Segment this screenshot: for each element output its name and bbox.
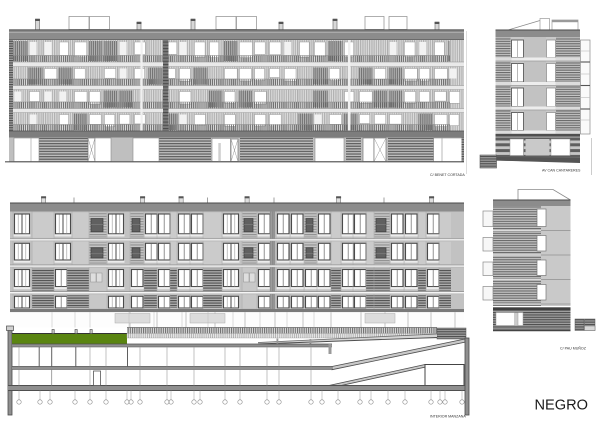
svg-text:AV CAN CANTARERES: AV CAN CANTARERES (542, 169, 581, 173)
svg-text:INTERIOR MANZANA: INTERIOR MANZANA (430, 415, 466, 419)
svg-text:NEGRO: NEGRO (535, 398, 589, 414)
svg-text:C/ BENET CORTADA: C/ BENET CORTADA (430, 173, 465, 177)
svg-text:C/ PAU MUÑOZ: C/ PAU MUÑOZ (560, 346, 587, 351)
